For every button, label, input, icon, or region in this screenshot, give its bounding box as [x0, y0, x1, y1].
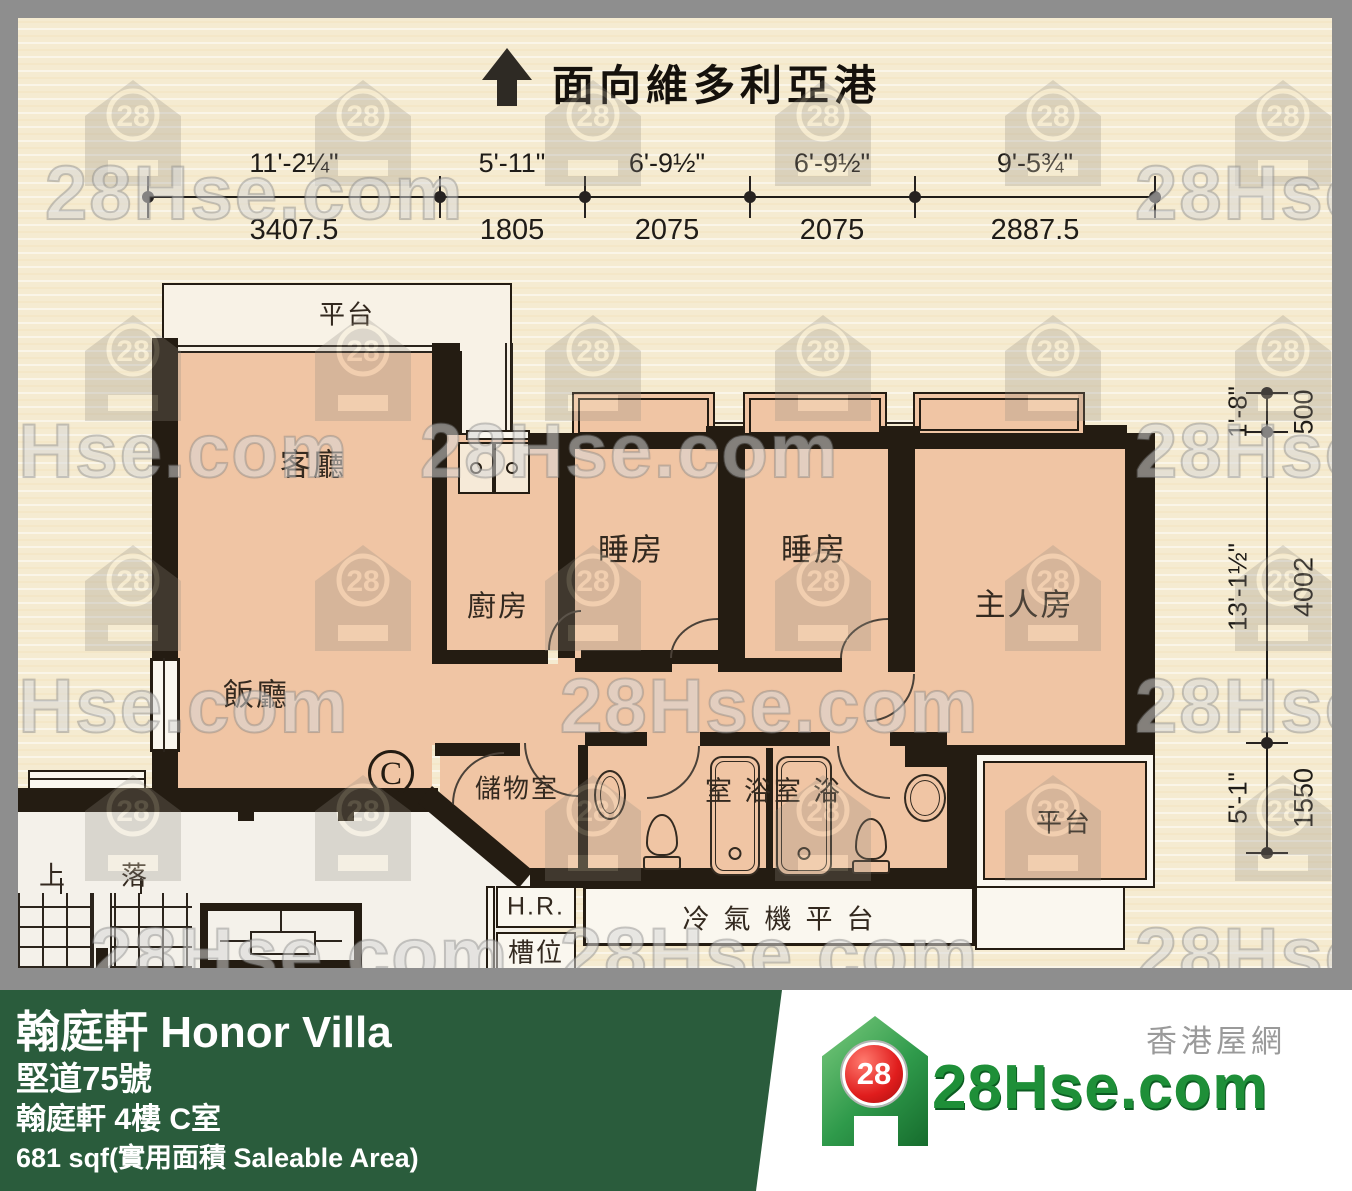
pipe-duct-lines — [486, 886, 495, 970]
window-line — [178, 351, 432, 353]
wall — [432, 650, 548, 664]
toilet-tank — [643, 856, 681, 870]
brand-tagline: 香港屋網 — [1146, 1016, 1286, 1061]
window-line — [511, 343, 513, 435]
corridor-area — [432, 664, 915, 745]
scan-band-bottom — [0, 968, 1352, 990]
logo-badge: 28 — [842, 1042, 906, 1106]
saleable-area: 681 sqf(實用面積 Saleable Area) — [16, 1136, 419, 1175]
unit-letter-badge: C — [368, 750, 414, 796]
scan-edge-left — [0, 0, 18, 990]
bathtub-drain — [798, 847, 811, 860]
lift-shaft — [200, 903, 362, 968]
bedroom2-label: 睡房 — [781, 525, 847, 570]
wall — [706, 426, 745, 449]
lift-symbol-line — [280, 911, 282, 931]
washbasin — [904, 774, 946, 822]
wall — [700, 732, 830, 746]
floorplan-page: 面向維多利亞港 11'-2¼" 5'-11" 6'-9½" 6'-9½" 9'-… — [0, 0, 1352, 1191]
house-logo-door — [854, 1116, 898, 1146]
stair-rail-end — [96, 948, 108, 968]
window-connector-line — [715, 422, 743, 424]
wall — [888, 449, 915, 672]
stairs-down-label: 落 — [121, 856, 149, 893]
master-room-label: 主人房 — [975, 580, 1074, 625]
stairs-up-label: 上 — [39, 856, 67, 893]
living-room-label: 客廳 — [280, 440, 346, 485]
storage-label: 儲物室 — [475, 769, 559, 806]
ac-platform-label: 冷氣機平台 — [683, 898, 888, 937]
property-info-bar: 翰庭軒 Honor Villa 堅道75號 翰庭軒 4樓 C室 681 sqf(… — [0, 990, 1352, 1191]
kitchen-counter — [466, 430, 530, 440]
bathtub-2: 浴室 — [776, 756, 832, 876]
wall — [528, 433, 1155, 449]
wall-tab — [338, 812, 354, 821]
hr-label: H.R. — [507, 893, 565, 922]
estate-title: 翰庭軒 Honor Villa — [16, 996, 392, 1060]
dining-window — [150, 658, 180, 752]
bathroom1-label: 浴室 — [696, 777, 774, 842]
kitchen-label: 廚房 — [467, 583, 529, 625]
living-dining-area — [178, 353, 432, 788]
wall — [432, 343, 460, 435]
wall — [890, 732, 947, 746]
duct-label: 槽位 — [508, 933, 564, 970]
wall — [1125, 437, 1155, 767]
window-line — [505, 343, 507, 435]
wall — [432, 433, 447, 650]
bathtub-drain — [729, 847, 742, 860]
wall — [745, 658, 842, 672]
wall — [578, 745, 588, 868]
bay-window-master — [913, 392, 1085, 437]
estate-address: 堅道75號 — [16, 1052, 152, 1100]
wall — [1085, 425, 1127, 449]
dining-room-label: 飯廳 — [223, 670, 289, 715]
wall — [718, 449, 745, 672]
lift-car-symbol — [250, 931, 316, 955]
wall — [435, 743, 520, 756]
scan-edge-right — [1332, 0, 1352, 990]
window-line — [163, 658, 165, 752]
window-line — [178, 345, 432, 347]
wall — [880, 426, 920, 449]
window-line — [30, 778, 144, 780]
kitchen-sink-basin — [494, 442, 530, 494]
toilet-tank — [852, 860, 890, 874]
wall — [575, 658, 672, 672]
wall — [18, 788, 438, 812]
terrace-bottom-label: 平台 — [1036, 803, 1092, 840]
brand-name: 28Hse.com — [932, 1052, 1268, 1123]
washbasin — [594, 770, 626, 820]
neighbour-window — [28, 770, 146, 790]
kitchen-sink-basin — [458, 442, 494, 494]
scan-edge-top — [0, 0, 1352, 18]
bedroom1-label: 睡房 — [598, 525, 664, 570]
unit-info: 翰庭軒 4樓 C室 — [16, 1094, 221, 1138]
terrace-top-label: 平台 — [319, 295, 375, 332]
wall-tab — [238, 812, 254, 821]
bathroom2-label: 浴室 — [765, 777, 843, 842]
window-connector-line — [887, 422, 913, 424]
brand-panel: 28 28Hse.com 香港屋網 — [748, 990, 1352, 1191]
wall — [585, 732, 647, 746]
bathtub-1: 浴室 — [710, 756, 760, 876]
terrace-lower-deck — [975, 886, 1125, 950]
